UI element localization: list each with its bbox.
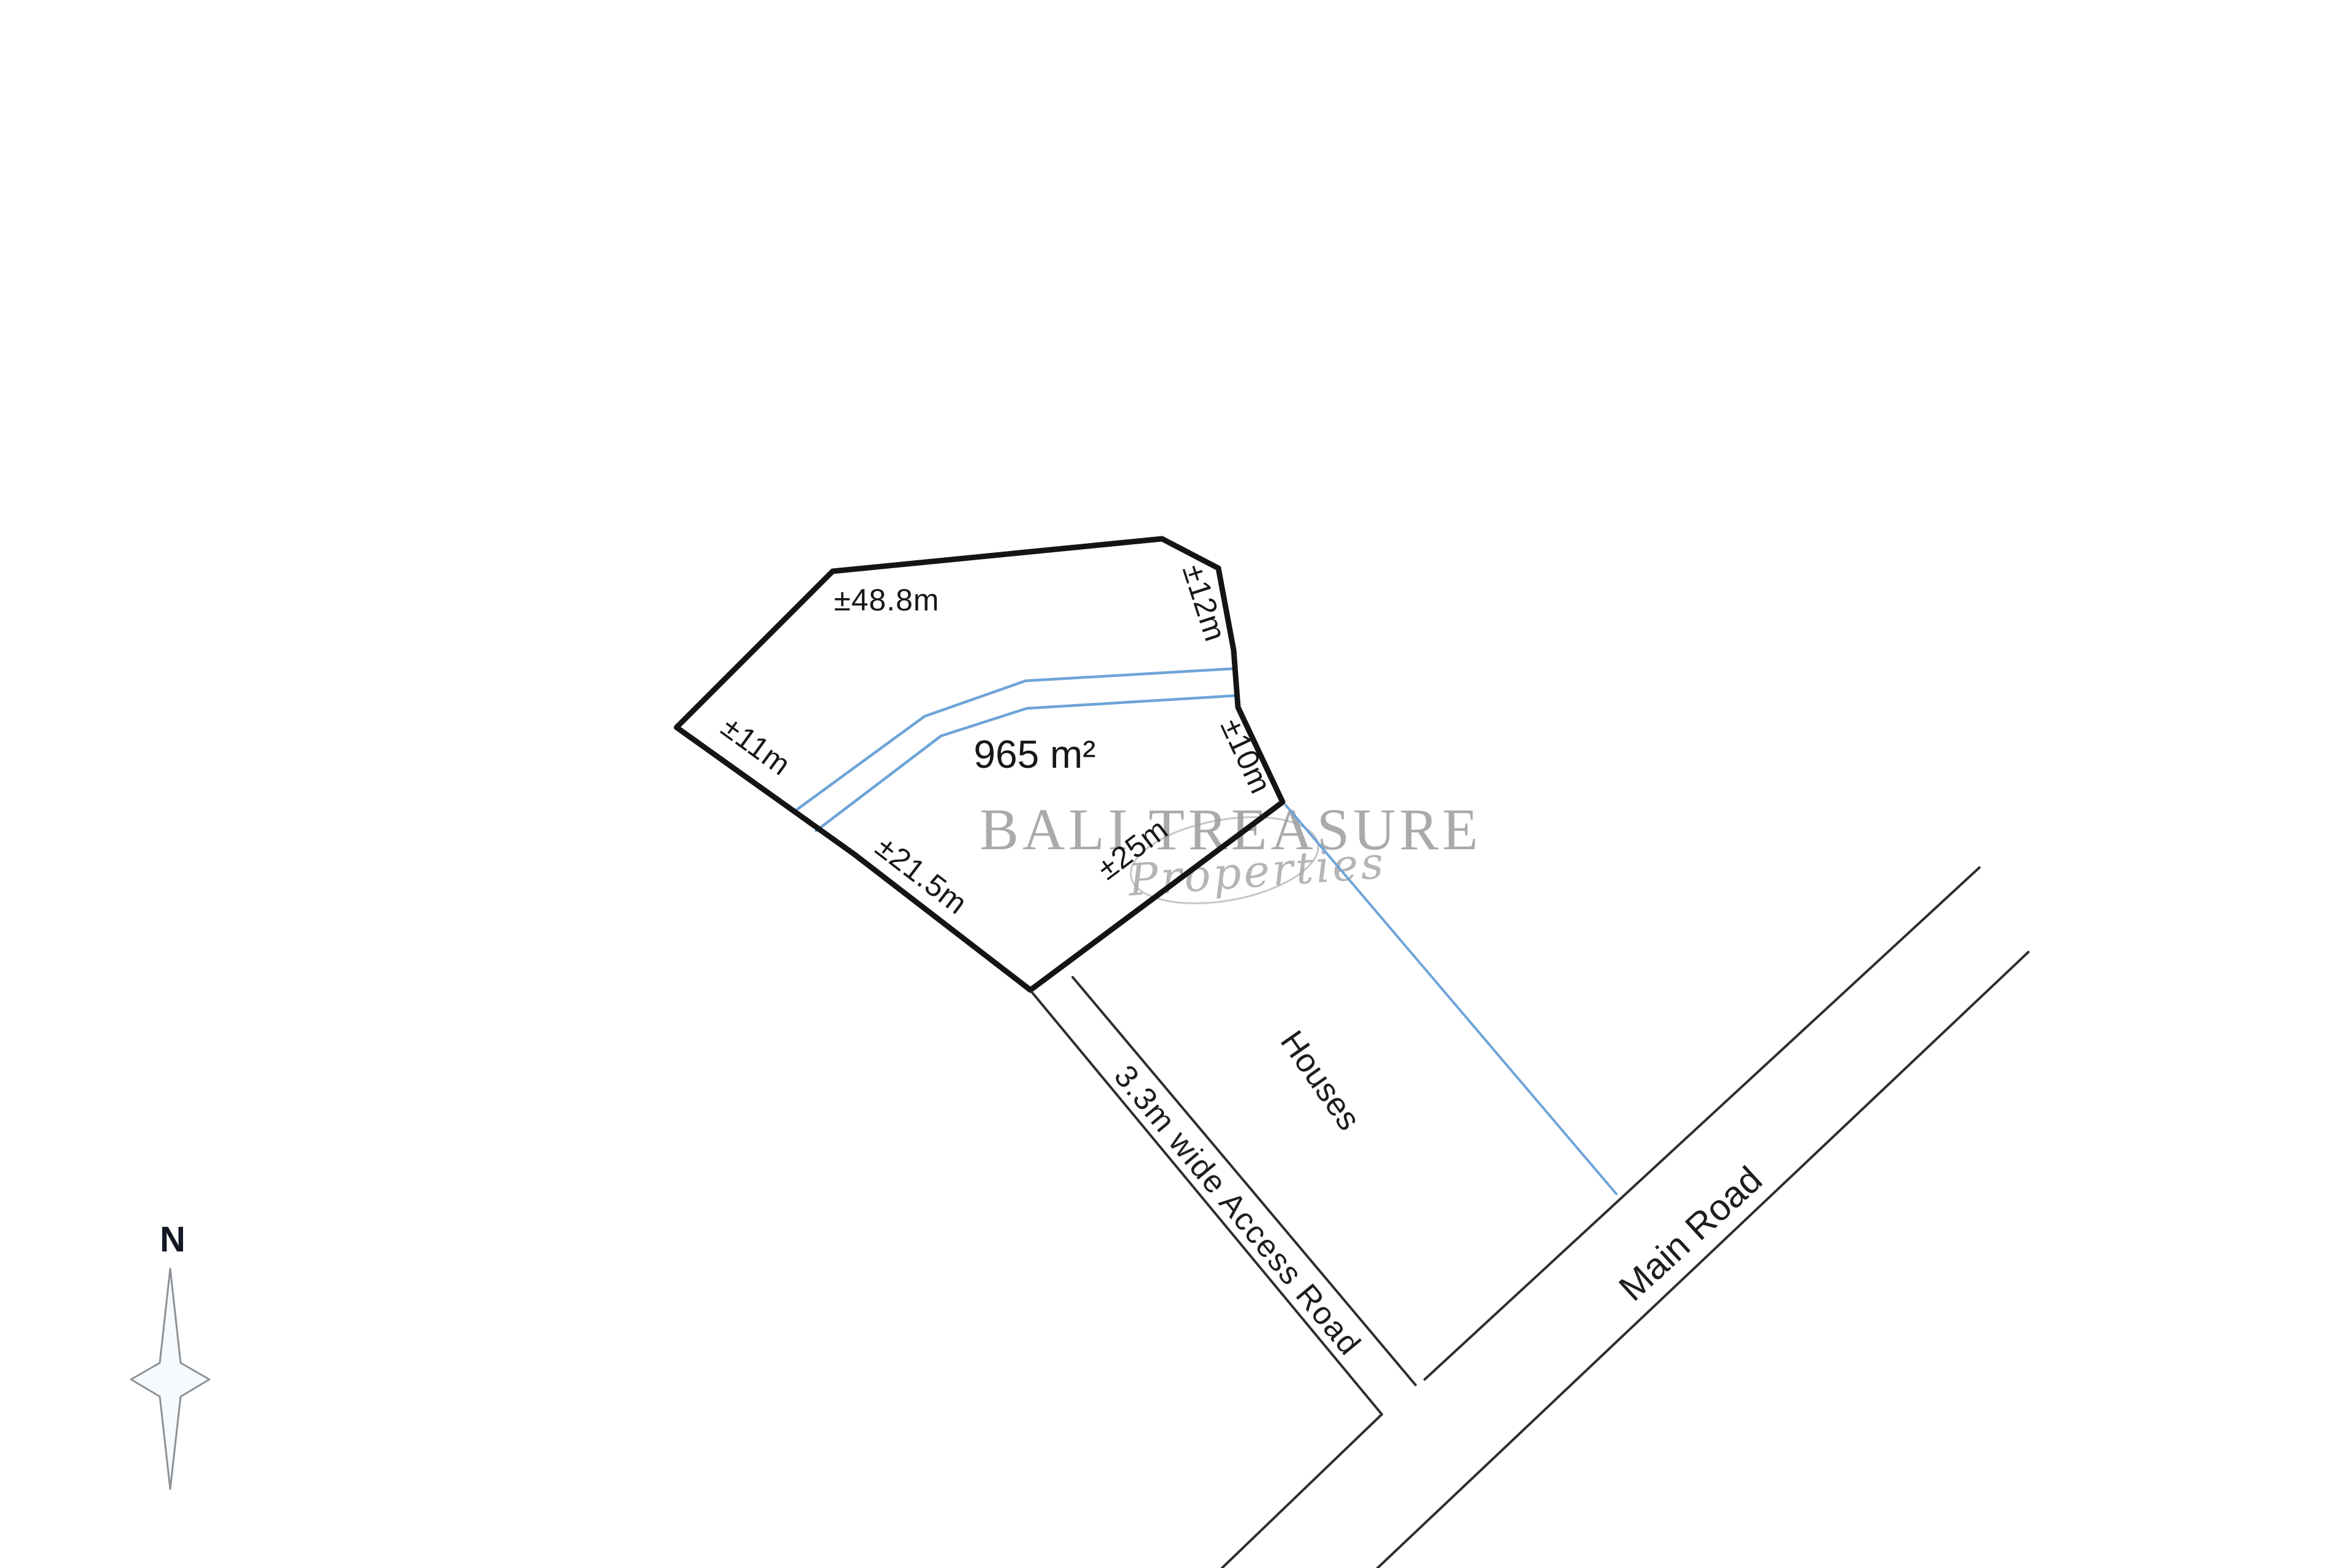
measurement-north: ±48.8m [834, 583, 939, 617]
main-road-lines [1222, 868, 2028, 1568]
survey-diagram-page: BALI TREASURE Properties ±48.8m ±12m ±10… [0, 0, 2351, 1568]
measurement-west: ±11m [715, 710, 797, 782]
main-road-nw-edge-south [1222, 1414, 1382, 1568]
main-road-nw-edge-north [1425, 868, 1979, 1379]
main-road-label: Main Road [1611, 1158, 1770, 1308]
access-road-left-edge [1032, 992, 1382, 1414]
survey-diagram: BALI TREASURE Properties ±48.8m ±12m ±10… [0, 0, 2351, 1568]
access-road-right-edge [1073, 977, 1415, 1385]
plot-area-label: 965 m² [973, 732, 1095, 776]
compass: N [131, 1220, 209, 1489]
main-road-se-edge [1378, 952, 2028, 1568]
compass-star-icon [131, 1269, 209, 1489]
brand-watermark: BALI TREASURE Properties [980, 797, 1482, 917]
measurement-east: ±10m [1214, 713, 1278, 799]
compass-north-label: N [160, 1220, 186, 1259]
plot-to-road-connector-line [1286, 805, 1616, 1194]
houses-label: Houses [1273, 1024, 1368, 1136]
